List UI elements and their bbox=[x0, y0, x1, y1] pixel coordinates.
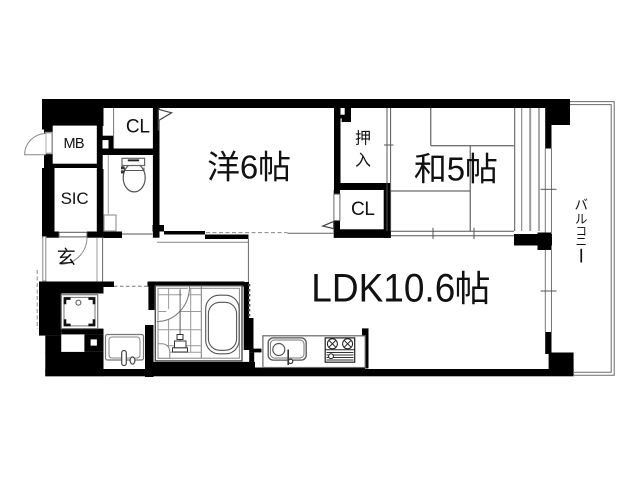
svg-text:MB: MB bbox=[64, 136, 85, 152]
svg-text:LDK10.6: LDK10.6 bbox=[311, 266, 455, 310]
svg-text:CL: CL bbox=[351, 199, 375, 220]
svg-text:CL: CL bbox=[126, 117, 150, 138]
svg-text:バ: バ bbox=[575, 198, 589, 213]
svg-text:和5帖: 和5帖 bbox=[414, 151, 498, 188]
svg-text:入: 入 bbox=[355, 153, 371, 170]
svg-text:玄: 玄 bbox=[57, 247, 76, 269]
svg-text:押: 押 bbox=[355, 130, 371, 148]
svg-text:帖: 帖 bbox=[454, 268, 490, 309]
svg-text:SIC: SIC bbox=[61, 189, 89, 208]
svg-text:ニ: ニ bbox=[576, 237, 588, 249]
svg-text:ル: ル bbox=[575, 213, 588, 227]
svg-text:洋6帖: 洋6帖 bbox=[207, 149, 291, 186]
